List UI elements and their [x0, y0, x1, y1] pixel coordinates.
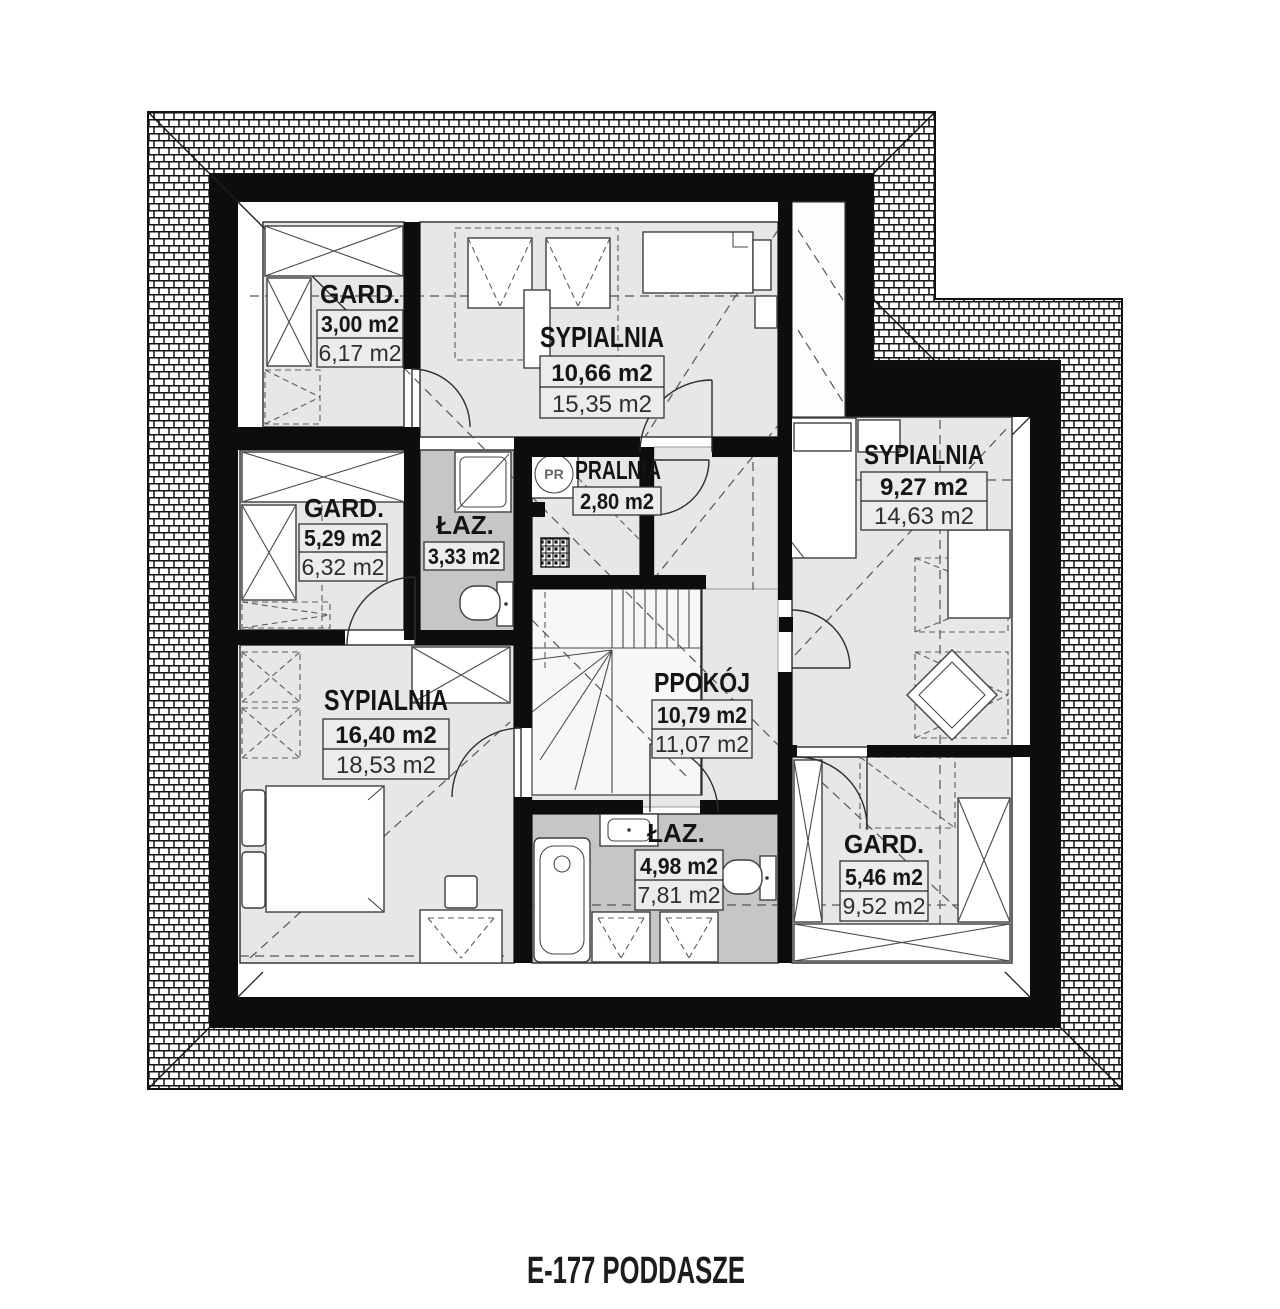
washing-machine-label: PR	[544, 466, 563, 482]
room-area-gross: 9,52 m2	[842, 893, 925, 919]
label-sypialnia-n: SYPIALNIA 10,66 m2 15,35 m2	[540, 322, 664, 418]
floor-plan-page: PR	[0, 0, 1280, 1309]
bathtub-icon	[534, 838, 590, 962]
room-area-gross: 14,63 m2	[874, 503, 974, 530]
room-area-net: 5,46 m2	[845, 864, 923, 890]
label-gard-se: GARD. 5,46 m2 9,52 m2	[840, 829, 928, 921]
room-area-net: 4,98 m2	[640, 853, 718, 879]
room-area-net: 9,27 m2	[880, 474, 968, 501]
label-ppokoj: PPOKÓJ 10,79 m2 11,07 m2	[652, 667, 752, 758]
corridor-floor	[654, 447, 778, 591]
room-area-gross: 6,32 m2	[301, 554, 384, 580]
shower-icon	[455, 452, 511, 512]
vent-dot-sypialnia-e	[779, 617, 793, 632]
room-name: PPOKÓJ	[654, 667, 750, 698]
room-area-net: 10,66 m2	[551, 360, 652, 387]
room-area-gross: 18,53 m2	[336, 752, 436, 779]
floor-drain-mosaic	[541, 538, 569, 567]
room-area-net: 3,33 m2	[428, 544, 500, 569]
room-name: ŁAZ.	[647, 818, 705, 848]
label-sypialnia-e: SYPIALNIA 9,27 m2 14,63 m2	[861, 439, 987, 530]
label-sypialnia-sw: SYPIALNIA 16,40 m2 18,53 m2	[323, 685, 449, 779]
room-area-gross: 11,07 m2	[655, 731, 749, 757]
room-area-net: 3,00 m2	[321, 311, 399, 337]
plan-title: E-177 PODDASZE	[527, 1250, 745, 1292]
room-name: GARD.	[844, 829, 924, 859]
room-name: ŁAZ.	[436, 510, 494, 540]
room-area-gross: 15,35 m2	[552, 391, 652, 418]
label-gard-nw: GARD. 3,00 m2 6,17 m2	[317, 279, 403, 367]
room-name: PRALNIA	[575, 455, 661, 485]
room-area-net: 16,40 m2	[335, 722, 436, 749]
floor-plan-drawing: PR	[0, 0, 1280, 1309]
room-name: SYPIALNIA	[864, 439, 984, 470]
label-gard-w: GARD. 5,29 m2 6,32 m2	[299, 493, 387, 581]
room-area-gross: 7,81 m2	[637, 882, 720, 908]
room-area-gross: 6,17 m2	[318, 340, 401, 366]
room-name: SYPIALNIA	[540, 322, 664, 354]
room-area-net: 10,79 m2	[657, 702, 747, 728]
room-area-net: 2,80 m2	[580, 489, 654, 514]
room-area-net: 5,29 m2	[304, 525, 382, 551]
room-name: SYPIALNIA	[324, 685, 448, 717]
room-name: GARD.	[320, 279, 400, 309]
washing-machine-icon: PR	[530, 450, 578, 498]
dead-space-ne	[792, 202, 845, 417]
room-name: GARD.	[304, 493, 384, 523]
